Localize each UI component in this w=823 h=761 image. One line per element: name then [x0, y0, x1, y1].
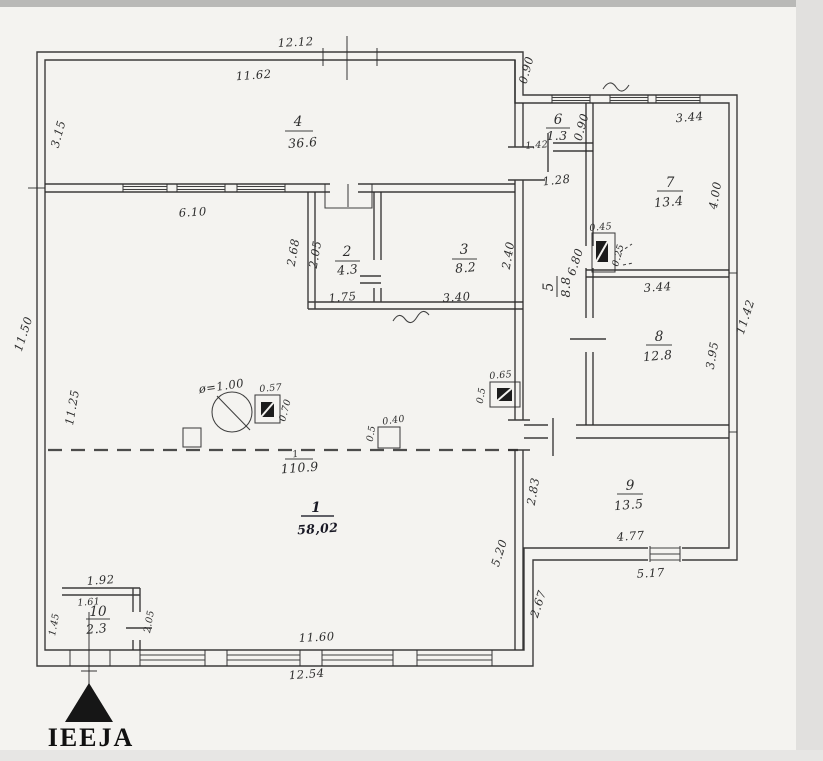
squiggle-mark: [603, 83, 629, 91]
dim-room4-bottom: 6.10: [178, 204, 207, 219]
room2-area: 4.3: [335, 261, 358, 278]
room1-number: 1: [311, 500, 320, 516]
wing-top-windows: [552, 95, 700, 103]
windows: [70, 95, 700, 666]
chimney-height-label: 0.5: [365, 425, 379, 443]
dim-top-inner: 11.62: [235, 67, 272, 83]
room7-number: 7: [666, 175, 675, 191]
room3-number: 3: [460, 242, 469, 258]
dim-room8-right: 3.95: [703, 340, 722, 370]
room9-number: 9: [626, 478, 635, 494]
dim-room9-bottom: 4.77: [615, 528, 645, 544]
stove-hall-width-label: 0.65: [489, 369, 513, 382]
dim-top-outer: 12.12: [277, 34, 314, 50]
fixtures: [183, 233, 633, 448]
dim-bottom-inner: 11.60: [298, 629, 335, 645]
room8-number: 8: [655, 329, 664, 345]
room9-area: 13.5: [613, 496, 644, 514]
room2-number: 2: [342, 244, 352, 260]
room10-area: 2.3: [84, 620, 107, 637]
stove-hall-height-label: 0.5: [475, 387, 489, 405]
scan-edge-right: [796, 0, 823, 761]
dim-room3-bottom: 3.40: [442, 289, 471, 305]
scan-edge-top: [0, 0, 823, 7]
room4-area: 36.6: [287, 134, 317, 151]
wall-joint-ticks: [28, 188, 737, 432]
dim-hall-width: 1.28: [542, 172, 571, 189]
room9-exterior-door: [650, 546, 680, 562]
dim-room8-top: 3.44: [643, 279, 672, 295]
dim-room9-left: 2.83: [524, 476, 543, 507]
room6-area: 1.3: [546, 128, 567, 143]
chimney-width-label: 0.40: [382, 413, 406, 427]
entrance-label: IEEJA: [48, 723, 135, 752]
dim-hall-height: 6.80: [564, 246, 586, 277]
stove-room7-depth-label: 0.25: [610, 243, 627, 268]
room-labels: 4 36.6 2 4.3 3 8.2 6 1.3 7 13.4 5 8.8 8 …: [84, 112, 683, 637]
overall-area: 110.9: [280, 459, 319, 477]
dim-room6-right: 0.90: [571, 112, 592, 143]
stove-room7-width-label: 0.45: [589, 221, 613, 234]
interior-walls: [28, 36, 737, 650]
dim-room7-right: 4.00: [706, 180, 725, 211]
stove-main-width-label: 0.57: [259, 382, 283, 395]
room5-number: 5: [541, 283, 557, 292]
dim-room10-top: 1.92: [86, 572, 115, 588]
overall-numerator: 1: [291, 449, 299, 461]
exterior-walls: [37, 52, 737, 666]
room3-area: 8.2: [454, 259, 476, 276]
room5-label-group: 5 8.8: [541, 276, 573, 298]
room7-area: 13.4: [653, 193, 684, 211]
exterior-inner-outline: [45, 60, 729, 650]
room4-wall-windows: [123, 184, 285, 192]
room1-area: 58,02: [297, 520, 339, 538]
exterior-outer-outline: [37, 52, 737, 666]
chimney-mid: [378, 427, 400, 448]
room5-area: 8.8: [558, 276, 573, 297]
rooms-7-8-divider: [586, 270, 729, 277]
dim-wing-connector: 0.90: [516, 55, 537, 86]
well-diagonal: [217, 396, 250, 430]
entrance-triangle-icon: [65, 683, 113, 722]
room10-number: 10: [89, 604, 107, 620]
top-wall-ticks: [323, 36, 377, 80]
floor-plan-drawing: 12.12 11.62 3.15 11.50 11.25 6.10 2.68 2…: [0, 0, 823, 761]
dim-room1-right-lower: 2.67: [527, 588, 549, 620]
dim-room4-left: 3.15: [48, 119, 69, 150]
chimney-left: [183, 428, 201, 447]
dim-room2-bottom: 1.75: [328, 289, 357, 305]
flue-block: [325, 184, 372, 208]
dim-left-inner: 11.25: [62, 388, 82, 426]
dim-bottom-outer: 12.54: [288, 666, 325, 682]
dim-room9-bottom-outer: 5.17: [636, 565, 665, 580]
dim-room2-left-outer: 2.68: [284, 237, 303, 268]
dim-room1-right: 5.20: [488, 537, 510, 568]
bottom-wall-windows: [70, 650, 492, 666]
room4-number: 4: [293, 114, 303, 130]
dim-room7-top: 3.44: [675, 109, 704, 125]
dim-room6-bottom: 1.42: [525, 139, 548, 152]
room6-number: 6: [554, 112, 563, 128]
room8-area: 12.8: [642, 347, 673, 365]
squiggle-mark: [393, 311, 429, 322]
dim-left-outer: 11.50: [11, 315, 35, 354]
room4-bottom-wall: [45, 184, 515, 192]
room9-top-wall: [524, 418, 729, 456]
dim-room10-left: 1.45: [47, 612, 62, 636]
scanned-floor-plan-page: 12.12 11.62 3.15 11.50 11.25 6.10 2.68 2…: [0, 0, 823, 761]
dim-room10-right: 2.05: [142, 609, 157, 634]
